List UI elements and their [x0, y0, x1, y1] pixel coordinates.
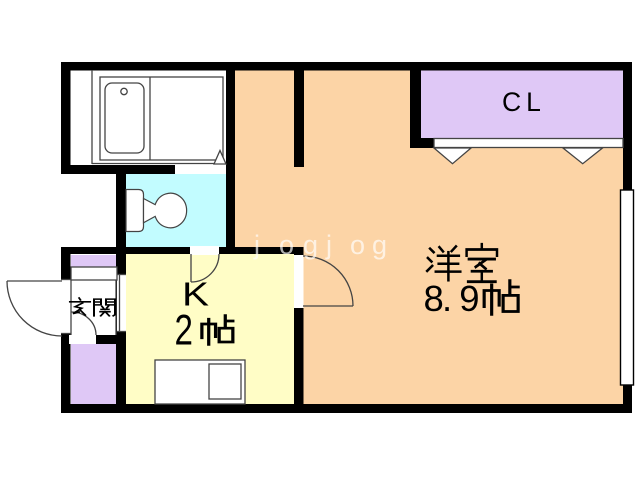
- svg-text:2: 2: [175, 308, 193, 355]
- svg-text:g: g: [372, 230, 387, 260]
- svg-text:8: 8: [424, 278, 444, 319]
- svg-text:o: o: [279, 230, 294, 260]
- svg-text:g: g: [303, 230, 318, 260]
- svg-text:j: j: [253, 230, 260, 260]
- svg-text:j: j: [325, 230, 332, 260]
- svg-text:CL: CL: [502, 87, 546, 117]
- svg-text:.: .: [442, 278, 452, 319]
- svg-text:9: 9: [459, 278, 479, 319]
- svg-text:o: o: [350, 230, 365, 260]
